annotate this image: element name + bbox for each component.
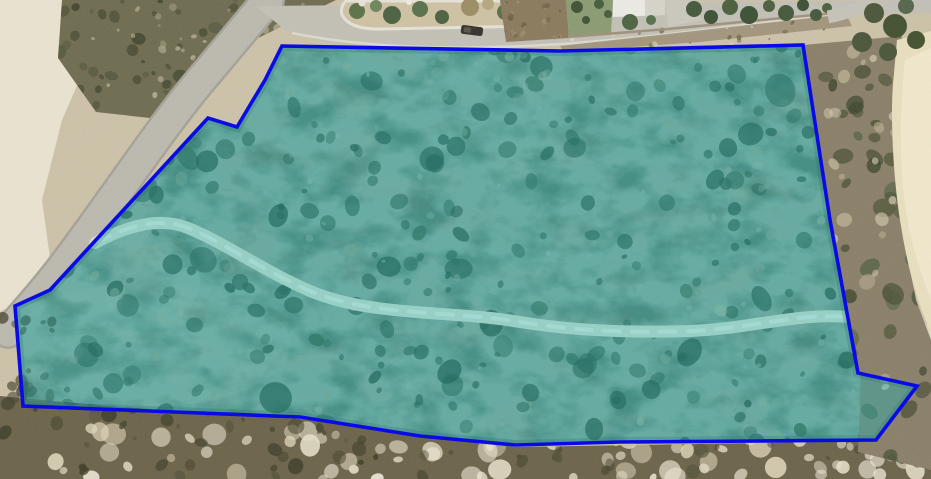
satellite-map[interactable] — [0, 0, 931, 479]
map-viewport[interactable] — [0, 0, 931, 479]
